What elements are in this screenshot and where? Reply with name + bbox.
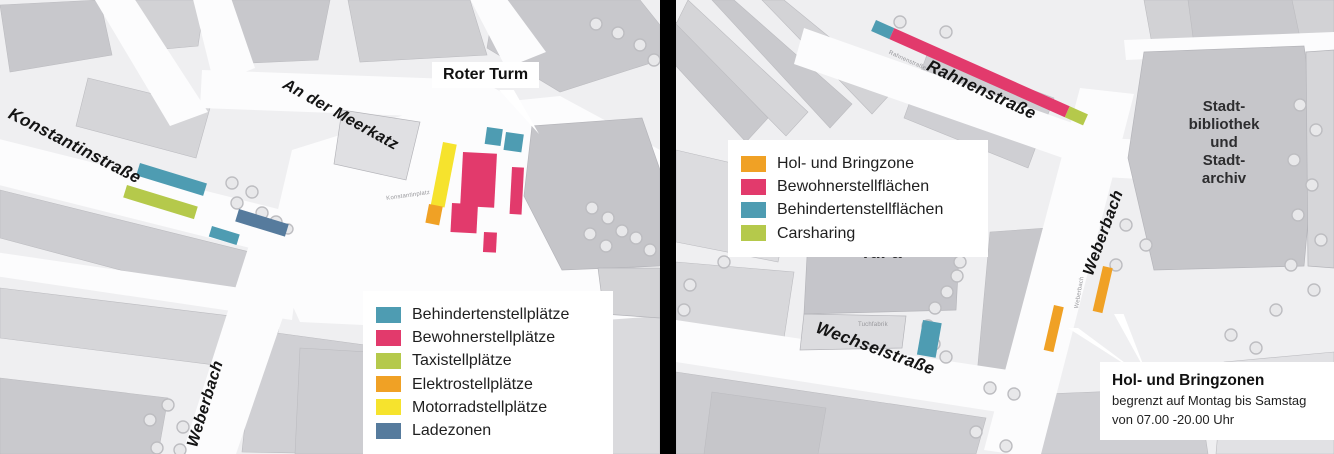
legend-item: Ladezonen (376, 421, 600, 440)
zone-bar-bewohner-1 (460, 152, 497, 208)
roter-turm-label: Roter Turm (443, 66, 528, 83)
legend-color-chip (376, 399, 401, 415)
legend-item-label: Taxistellplätze (412, 351, 512, 370)
legend-item: Carsharing (741, 224, 975, 243)
legend-item: Motorradstellplätze (376, 398, 600, 417)
legend-color-chip (741, 202, 766, 218)
legend-item-label: Elektrostellplätze (412, 375, 533, 394)
legend-color-chip (741, 225, 766, 241)
legend-item-label: Bewohnerstellflächen (777, 177, 929, 196)
stadtbibliothek-line: und (1164, 134, 1284, 152)
legend-right: Hol- und Bringzone Bewohnerstellflächen … (728, 140, 988, 257)
legend-item-label: Behindertenstellplätze (412, 305, 569, 324)
panel-divider (660, 0, 676, 454)
parking-maps-figure: Konstantinstraße An der Meerkatz Weberba… (0, 0, 1334, 454)
minor-label-tuchfabrik: Tuchfabrik (858, 322, 888, 328)
legend-color-chip (376, 423, 401, 439)
legend-color-chip (376, 330, 401, 346)
zone-bar-behinderten-turm-1 (485, 127, 503, 146)
legend-item: Behindertenstellplätze (376, 305, 600, 324)
zone-bar-bewohner-3 (450, 203, 477, 233)
holbring-callout-title: Hol- und Bringzonen (1112, 372, 1324, 390)
legend-item: Taxistellplätze (376, 351, 600, 370)
building-label-stadtbibliothek: Stadt- bibliothek und Stadt- archiv (1164, 98, 1284, 188)
legend-color-chip (741, 156, 766, 172)
left-map-panel: Konstantinstraße An der Meerkatz Weberba… (0, 0, 660, 454)
legend-item-label: Carsharing (777, 224, 855, 243)
holbring-callout-line1: begrenzt auf Montag bis Samstag (1112, 392, 1324, 411)
legend-color-chip (741, 179, 766, 195)
legend-item: Hol- und Bringzone (741, 154, 975, 173)
legend-color-chip (376, 353, 401, 369)
holbring-callout: Hol- und Bringzonen begrenzt auf Montag … (1100, 362, 1334, 440)
legend-item-label: Ladezonen (412, 421, 491, 440)
legend-item-label: Motorradstellplätze (412, 398, 547, 417)
legend-item: Bewohnerstellflächen (741, 177, 975, 196)
stadtbibliothek-line: bibliothek (1164, 116, 1284, 134)
legend-item: Bewohnerstellplätze (376, 328, 600, 347)
legend-color-chip (376, 307, 401, 323)
roter-turm-callout: Roter Turm (432, 62, 539, 88)
legend-item: Behindertenstellflächen (741, 200, 975, 219)
legend-item-label: Bewohnerstellplätze (412, 328, 555, 347)
right-map-panel: Rahnenstraße Weberbach Wechselstraße Rah… (676, 0, 1334, 454)
legend-left: Behindertenstellplätze Bewohnerstellplät… (363, 291, 613, 454)
stadtbibliothek-line: Stadt- (1164, 98, 1284, 116)
zone-bar-behinderten-turm-2 (503, 132, 523, 152)
legend-item-label: Behindertenstellflächen (777, 200, 943, 219)
legend-color-chip (376, 376, 401, 392)
legend-item: Elektrostellplätze (376, 375, 600, 394)
stadtbibliothek-line: Stadt- (1164, 152, 1284, 170)
holbring-callout-line2: von 07.00 -20.00 Uhr (1112, 411, 1324, 430)
zone-bar-bewohner-4 (483, 232, 497, 253)
zone-bar-bewohner-2 (510, 167, 524, 215)
stadtbibliothek-line: archiv (1164, 170, 1284, 188)
legend-item-label: Hol- und Bringzone (777, 154, 914, 173)
